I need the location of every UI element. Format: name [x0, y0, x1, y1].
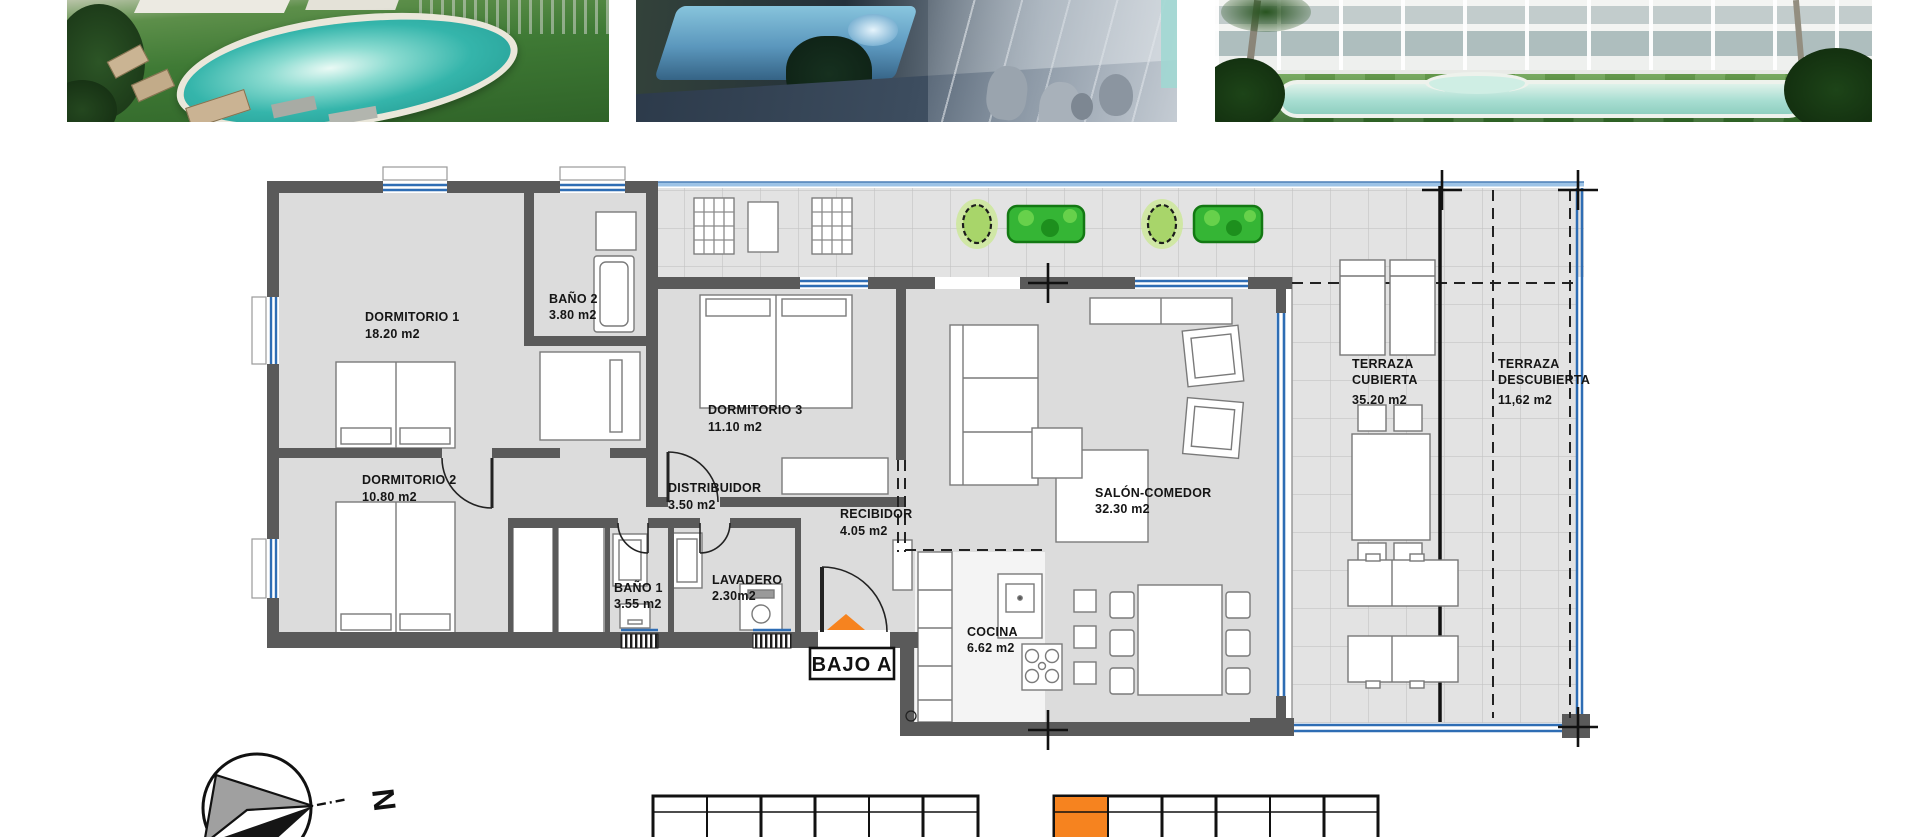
room-name: DISTRIBUIDOR [668, 481, 761, 495]
keyplan-left [653, 796, 978, 837]
room-name: LAVADERO [712, 573, 782, 587]
bed-dormitorio3 [700, 295, 852, 408]
closet-hall [513, 524, 553, 634]
room-area: 10.80 m2 [362, 490, 417, 504]
room-area: 4.05 m2 [840, 524, 888, 538]
compass: N [180, 754, 403, 837]
floor-plan-drawing: DORMITORIO 1 18.20 m2 BAÑO 2 3.80 m2 DOR… [0, 0, 1920, 837]
room-name: DORMITORIO 1 [365, 310, 459, 324]
page: DORMITORIO 1 18.20 m2 BAÑO 2 3.80 m2 DOR… [0, 0, 1920, 837]
wardrobe-dormitorio3 [782, 458, 888, 494]
sideboard [1090, 298, 1232, 324]
room-name: DESCUBIERTA [1498, 373, 1590, 387]
room-name: BAÑO 2 [549, 291, 598, 306]
sofa [950, 325, 1038, 485]
compass-line [317, 799, 348, 805]
room-name: RECIBIDOR [840, 507, 912, 521]
armchair [1182, 325, 1244, 387]
bathroom2-fixtures [594, 212, 636, 332]
room-area: 11,62 m2 [1498, 393, 1552, 407]
unit-label: BAJO A [812, 654, 893, 676]
keyplan-highlighted-unit [1054, 796, 1108, 837]
room-name: DORMITORIO 3 [708, 403, 802, 417]
skylight-grate [694, 198, 852, 254]
bed-dormitorio1 [336, 362, 455, 448]
closet-hall [558, 524, 604, 634]
room-area: 6.62 m2 [967, 641, 1015, 655]
compass-north-label: N [365, 787, 402, 813]
room-area: 3.55 m2 [614, 597, 662, 611]
keyplan-right [1054, 796, 1378, 837]
entry-closet [893, 540, 912, 590]
room-area: 18.20 m2 [365, 327, 420, 341]
armchair [1183, 398, 1244, 459]
room-area: 32.30 m2 [1095, 502, 1150, 516]
room-area: 2.30m2 [712, 589, 756, 603]
room-name: SALÓN-COMEDOR [1095, 485, 1211, 500]
bed-dormitorio2 [336, 502, 455, 634]
room-name: COCINA [967, 625, 1018, 639]
closet-dormitorio1 [540, 352, 640, 440]
room-area: 3.80 m2 [549, 308, 597, 322]
room-name: TERRAZA [1352, 357, 1413, 371]
room-name: CUBIERTA [1352, 373, 1418, 387]
room-name: BAÑO 1 [614, 580, 663, 595]
dining-table [1110, 585, 1250, 695]
room-name: TERRAZA [1498, 357, 1559, 371]
room-name: DORMITORIO 2 [362, 473, 456, 487]
room-area: 3.50 m2 [668, 498, 716, 512]
room-area: 11.10 m2 [708, 420, 762, 434]
room-area: 35.20 m2 [1352, 393, 1407, 407]
